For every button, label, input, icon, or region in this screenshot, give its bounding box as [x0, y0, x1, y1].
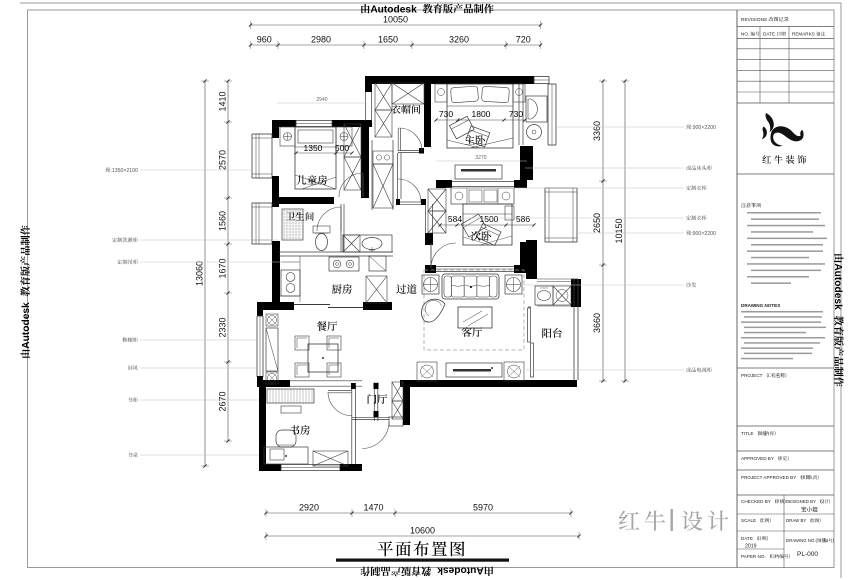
svg-text:PAPER NO. （: PAPER NO. （	[741, 554, 772, 559]
svg-text:）: ）	[819, 518, 823, 523]
svg-text:NO.: NO.	[741, 32, 749, 37]
svg-text:APPROVED BY （: APPROVED BY （	[741, 456, 780, 461]
svg-text:2650: 2650	[592, 213, 602, 233]
svg-text:2920: 2920	[299, 503, 319, 513]
svg-text:2670: 2670	[218, 391, 228, 411]
svg-text:DRAW BY （: DRAW BY （	[786, 518, 812, 523]
svg-text:PROJECT APPROVED BY （: PROJECT APPROVED BY （	[741, 475, 803, 480]
svg-text:）: ）	[817, 475, 822, 480]
svg-text:960: 960	[257, 35, 272, 45]
svg-text:2940: 2940	[316, 97, 327, 103]
svg-text:）: ）	[769, 518, 774, 523]
svg-text:1560: 1560	[218, 211, 228, 231]
svg-text:DRAWING NOTES: DRAWING NOTES	[741, 303, 780, 308]
svg-text:1350: 1350	[304, 143, 323, 153]
svg-text:586: 586	[516, 214, 530, 224]
svg-text:5970: 5970	[473, 503, 493, 513]
svg-text:）: ）	[767, 536, 772, 541]
svg-text:Autodesk: Autodesk	[21, 302, 32, 349]
svg-text:）: ）	[829, 499, 833, 504]
svg-text:名称）: 名称）	[776, 372, 790, 379]
svg-text:720: 720	[516, 35, 531, 45]
svg-text:1650: 1650	[378, 35, 398, 45]
svg-text:）: ）	[789, 554, 794, 559]
svg-text:纸: 纸	[762, 430, 767, 437]
svg-text:13060: 13060	[195, 261, 205, 286]
svg-text:10600: 10600	[410, 526, 435, 536]
svg-text:2980: 2980	[311, 35, 331, 45]
svg-text:Autodesk: Autodesk	[437, 565, 484, 576]
svg-text:1800: 1800	[472, 109, 491, 119]
svg-text:3260: 3260	[449, 35, 469, 45]
svg-text:2570: 2570	[218, 150, 228, 170]
svg-text:DRAWING NO.(: DRAWING NO.(	[786, 538, 817, 543]
svg-text:）: ）	[787, 456, 792, 461]
svg-text:DATE: DATE	[763, 32, 775, 37]
svg-text::1350×2100: :1350×2100	[110, 168, 138, 174]
svg-text:2330: 2330	[218, 317, 228, 337]
svg-text:2019: 2019	[745, 544, 757, 550]
svg-text:3270: 3270	[475, 155, 486, 161]
svg-text:730: 730	[439, 109, 453, 119]
svg-text:10150: 10150	[614, 218, 624, 243]
svg-text:584: 584	[448, 214, 462, 224]
svg-text:1470: 1470	[363, 503, 383, 513]
svg-text::900×2200: :900×2200	[691, 231, 716, 237]
svg-text:PROJECT （: PROJECT （	[741, 373, 769, 378]
svg-text:730: 730	[509, 109, 523, 119]
svg-text::900×2200: :900×2200	[691, 125, 716, 131]
svg-text:DESIGNED BY （: DESIGNED BY （	[786, 499, 822, 504]
svg-text:1500: 1500	[480, 214, 499, 224]
svg-text:10050: 10050	[383, 15, 408, 25]
svg-text:SCALE （: SCALE （	[741, 518, 762, 523]
svg-text:REMARKS: REMARKS	[792, 32, 815, 37]
svg-text:REVISIONS: REVISIONS	[741, 17, 767, 23]
svg-text:）: ）	[774, 431, 779, 436]
svg-text:CHECKED BY （: CHECKED BY （	[741, 499, 777, 504]
svg-text:3660: 3660	[592, 313, 602, 333]
svg-text:PL-000: PL-000	[797, 551, 818, 558]
svg-text:宝小姐: 宝小姐	[801, 506, 818, 514]
svg-text:1410: 1410	[218, 91, 228, 111]
svg-text:DATE （: DATE （	[741, 536, 759, 541]
svg-text:3360: 3360	[592, 121, 602, 141]
svg-text:TITLE （: TITLE （	[741, 431, 760, 436]
svg-text:Autodesk: Autodesk	[832, 263, 843, 310]
svg-text:1670: 1670	[218, 258, 228, 278]
